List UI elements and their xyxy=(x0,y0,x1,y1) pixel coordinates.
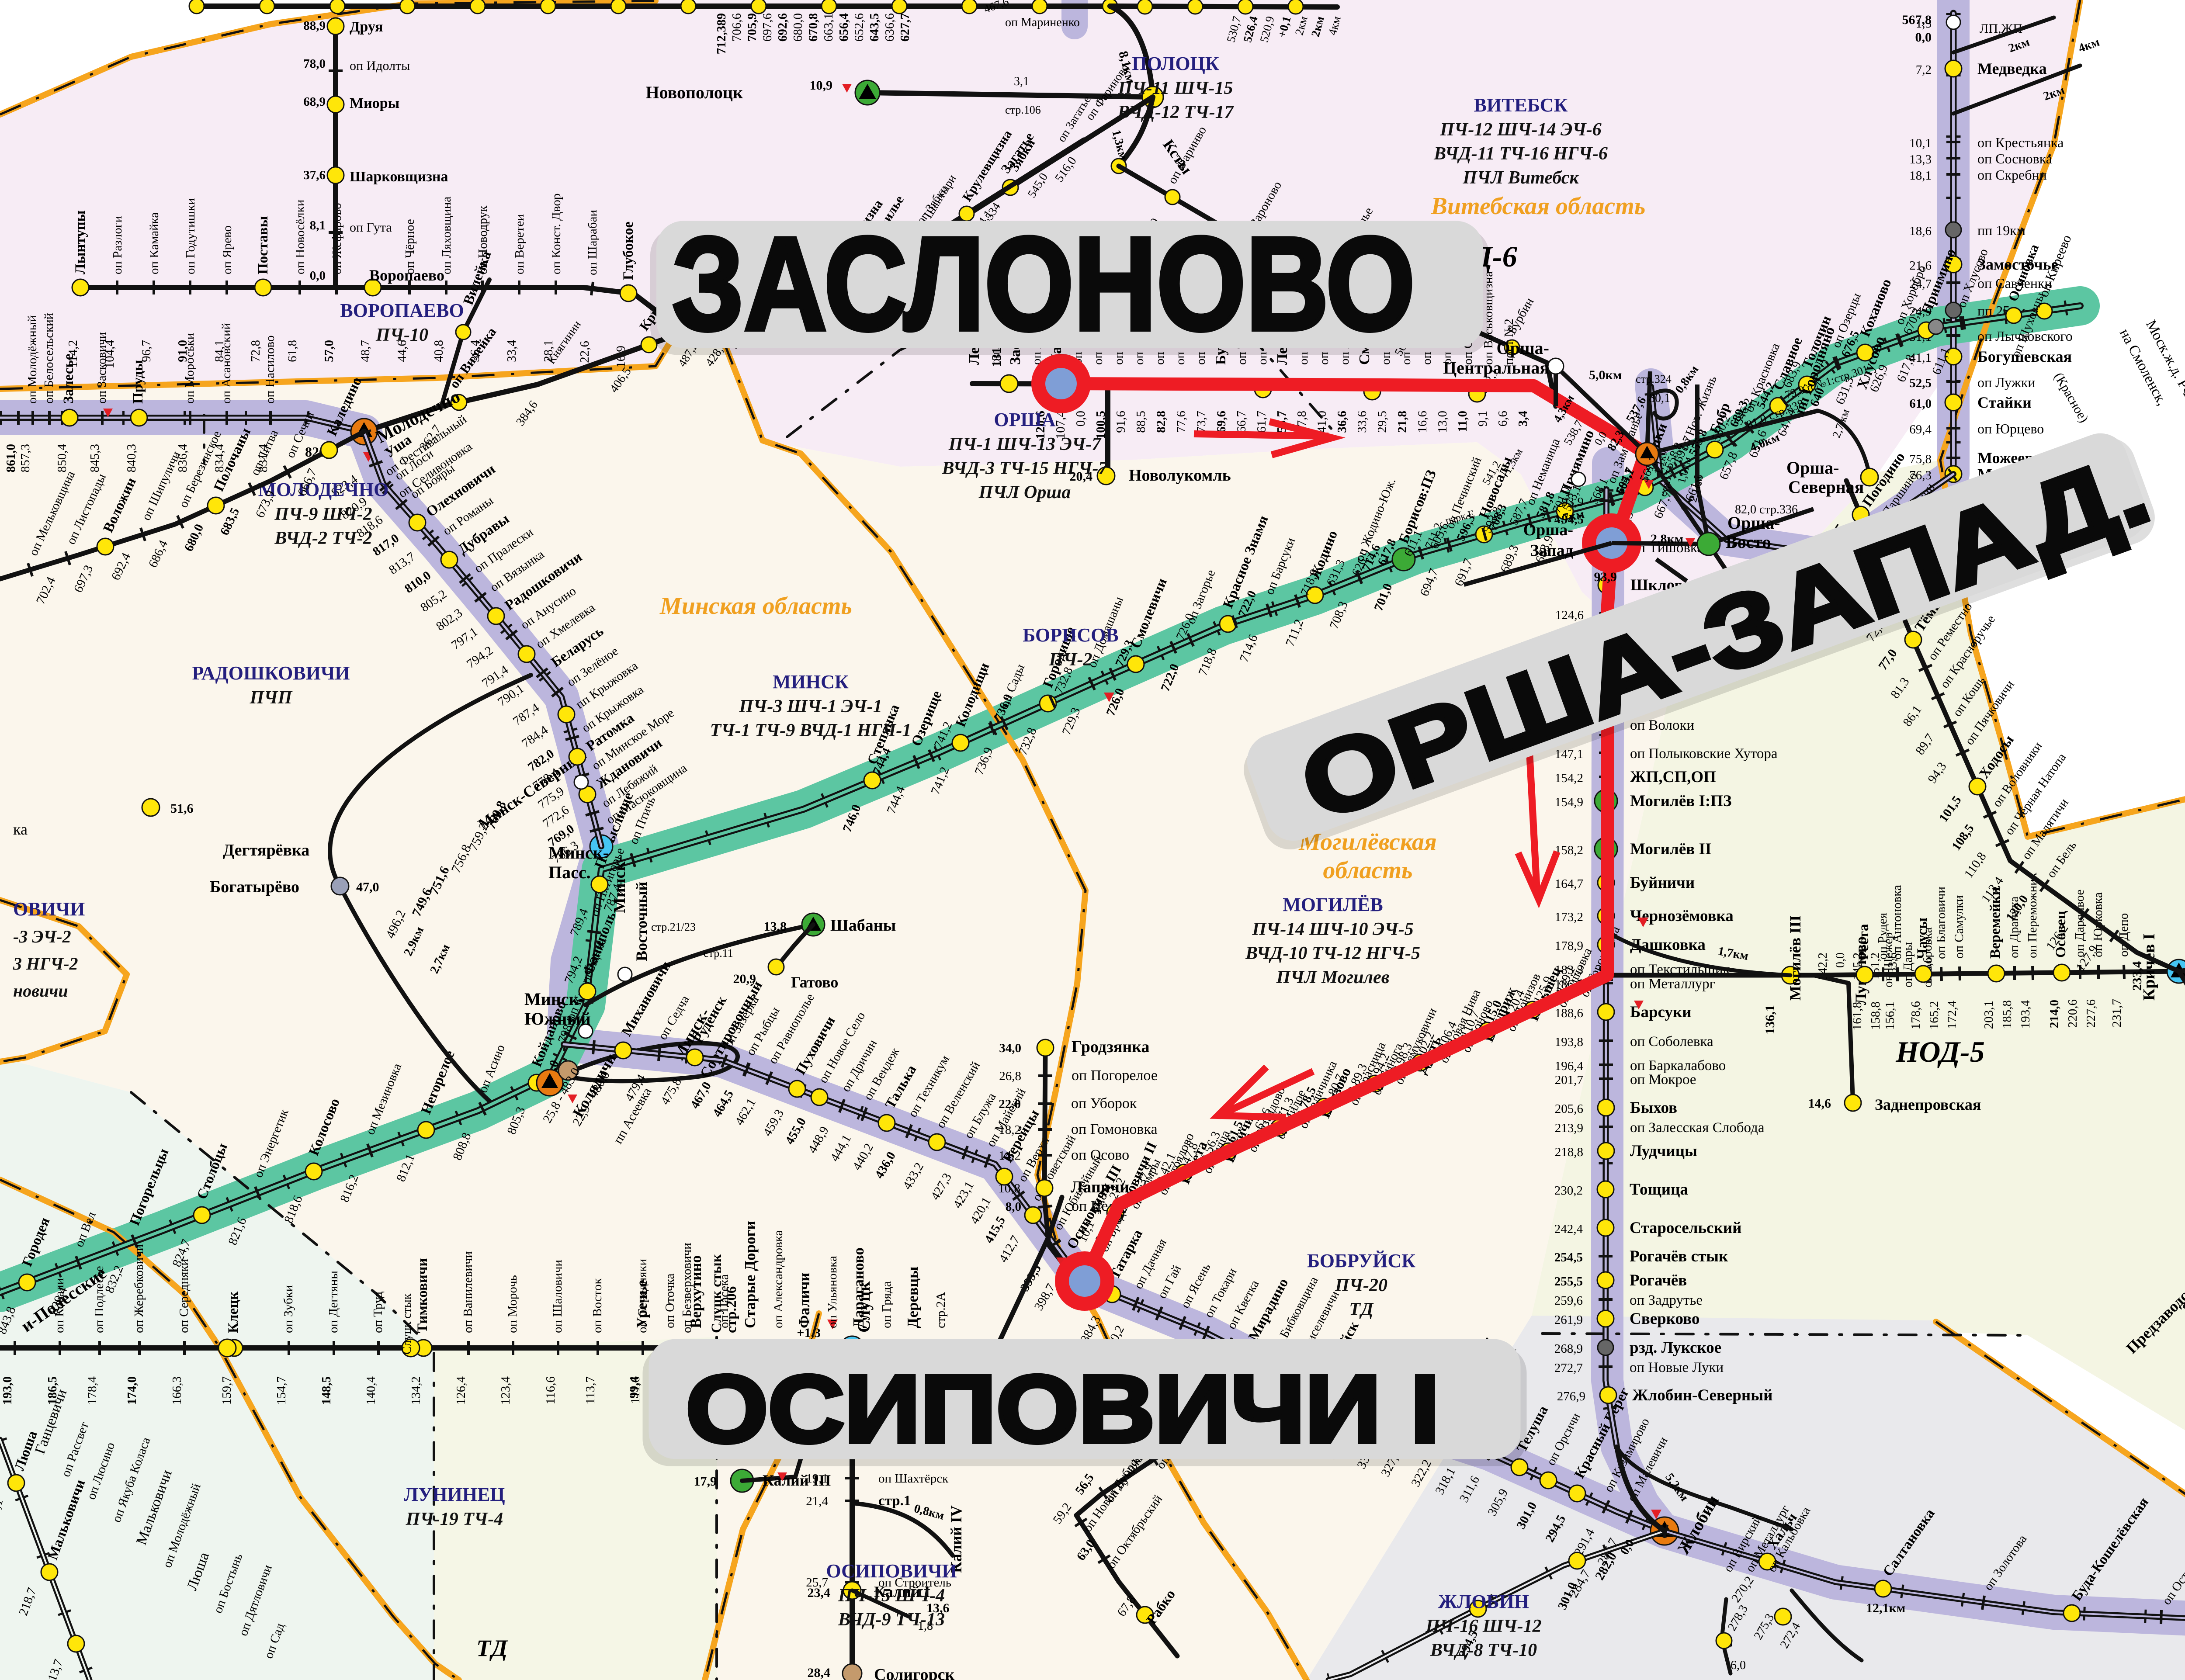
svg-text:оп Молодёжный: оп Молодёжный xyxy=(25,315,39,404)
svg-text:652,6: 652,6 xyxy=(852,13,866,42)
svg-text:41,0: 41,0 xyxy=(1315,411,1329,433)
svg-text:Новолукомль: Новолукомль xyxy=(1129,466,1231,485)
svg-text:242,4: 242,4 xyxy=(1554,1222,1583,1236)
svg-text:ПЧЛ Орша: ПЧЛ Орша xyxy=(978,482,1071,502)
svg-text:21,8: 21,8 xyxy=(1395,411,1409,433)
svg-text:3,4: 3,4 xyxy=(1516,411,1530,426)
svg-text:697,6: 697,6 xyxy=(760,13,774,42)
svg-text:Заднепровская: Заднепровская xyxy=(1875,1096,1981,1113)
svg-text:ПЧ-2: ПЧ-2 xyxy=(1048,650,1092,670)
svg-text:оп Засковичи: оп Засковичи xyxy=(95,332,109,404)
svg-text:Богатырёво: Богатырёво xyxy=(210,878,299,896)
svg-text:оп Полыковские Хутора: оп Полыковские Хутора xyxy=(1630,746,1778,762)
svg-text:ПЧЛ Витебск: ПЧЛ Витебск xyxy=(1462,168,1579,188)
svg-text:БОРИСОВ: БОРИСОВ xyxy=(1023,624,1118,646)
svg-text:ЛУНИНЕЦ: ЛУНИНЕЦ xyxy=(404,1484,505,1505)
svg-text:680,0: 680,0 xyxy=(791,13,805,42)
svg-text:пп 19км: пп 19км xyxy=(1977,222,2025,238)
svg-text:оп Рудея: оп Рудея xyxy=(1876,913,1890,960)
svg-text:Могилёв I:ПЗ: Могилёв I:ПЗ xyxy=(1630,792,1732,810)
svg-text:6,0: 6,0 xyxy=(1731,1659,1746,1672)
svg-text:193,8: 193,8 xyxy=(1555,1035,1583,1049)
svg-text:Поставы: Поставы xyxy=(255,216,271,274)
svg-text:Жлобин-Северный: Жлобин-Северный xyxy=(1632,1386,1772,1404)
svg-text:10,8: 10,8 xyxy=(998,1181,1020,1195)
svg-text:134,2: 134,2 xyxy=(409,1376,423,1405)
svg-text:172,4: 172,4 xyxy=(1945,1001,1959,1029)
svg-text:5,0км: 5,0км xyxy=(1589,368,1622,382)
svg-text:оп Шаловичи: оп Шаловичи xyxy=(551,1260,565,1333)
svg-text:Дегтярёвка: Дегтярёвка xyxy=(223,841,309,859)
svg-text:оп Осово: оп Осово xyxy=(1071,1147,1129,1163)
svg-text:255,5: 255,5 xyxy=(1554,1275,1583,1289)
svg-text:124,6: 124,6 xyxy=(1555,608,1584,622)
svg-text:857,3: 857,3 xyxy=(18,444,32,472)
svg-text:ВИТЕБСК: ВИТЕБСК xyxy=(1474,94,1568,116)
svg-text:0,0: 0,0 xyxy=(1834,953,1847,968)
svg-text:276,9: 276,9 xyxy=(1557,1389,1585,1403)
svg-text:861,0: 861,0 xyxy=(4,444,18,472)
svg-text:Минская область: Минская область xyxy=(659,592,852,620)
svg-text:Сверково: Сверково xyxy=(1630,1310,1699,1328)
svg-text:Старые Дороги: Старые Дороги xyxy=(742,1221,759,1328)
svg-text:82,0 стр.336: 82,0 стр.336 xyxy=(1735,503,1798,516)
svg-text:оп Гомоновка: оп Гомоновка xyxy=(1071,1121,1158,1137)
svg-text:Пруды: Пруды xyxy=(130,360,146,404)
svg-text:13,8: 13,8 xyxy=(764,919,787,934)
svg-text:22,0: 22,0 xyxy=(999,1097,1021,1111)
svg-text:оп Переможник: оп Переможник xyxy=(2025,872,2039,958)
svg-text:233,4: 233,4 xyxy=(2130,961,2144,991)
svg-text:ПОЛОЦК: ПОЛОЦК xyxy=(1132,53,1219,74)
svg-text:Шабаны: Шабаны xyxy=(830,916,896,935)
svg-text:ПЧП: ПЧП xyxy=(250,688,293,708)
svg-text:рзд. Лукское: рзд. Лукское xyxy=(1630,1339,1721,1357)
svg-text:2,8км: 2,8км xyxy=(1651,532,1683,546)
svg-text:Тощица: Тощица xyxy=(1630,1181,1688,1199)
svg-text:567,8: 567,8 xyxy=(1902,13,1932,27)
svg-text:18,2: 18,2 xyxy=(999,1123,1021,1137)
svg-text:ПЧЛ Могилев: ПЧЛ Могилев xyxy=(1276,967,1390,987)
svg-text:12,1км: 12,1км xyxy=(1866,1601,1905,1615)
svg-text:Фаличи: Фаличи xyxy=(796,1272,813,1328)
svg-text:Гатово: Гатово xyxy=(791,973,838,991)
svg-text:69,6: 69,6 xyxy=(1214,411,1228,433)
svg-text:193,4: 193,4 xyxy=(2019,1000,2032,1029)
svg-text:область: область xyxy=(1323,857,1412,884)
svg-text:ТД: ТД xyxy=(476,1635,508,1661)
svg-text:185,8: 185,8 xyxy=(2000,1000,2014,1029)
svg-text:22,6: 22,6 xyxy=(578,341,592,363)
svg-text:23,4: 23,4 xyxy=(808,1586,831,1600)
svg-text:ПЧ-11 ШЧ-15: ПЧ-11 ШЧ-15 xyxy=(1118,78,1233,98)
svg-text:ка: ка xyxy=(13,821,28,838)
svg-text:10,9: 10,9 xyxy=(810,78,833,93)
svg-text:126,4: 126,4 xyxy=(454,1376,468,1405)
svg-text:636,6: 636,6 xyxy=(883,13,897,42)
svg-text:80,1: 80,1 xyxy=(1649,391,1670,405)
svg-text:201,7: 201,7 xyxy=(1555,1073,1583,1087)
svg-text:ПЧ-19 ТЧ-4: ПЧ-19 ТЧ-4 xyxy=(406,1509,503,1529)
svg-text:148,5: 148,5 xyxy=(319,1376,333,1405)
svg-text:154,2: 154,2 xyxy=(1555,771,1583,785)
svg-text:99,4: 99,4 xyxy=(627,1376,641,1399)
svg-text:ТД: ТД xyxy=(1349,1299,1374,1320)
svg-text:Калий III: Калий III xyxy=(763,1472,831,1489)
svg-text:оп Шахтёрск: оп Шахтёрск xyxy=(878,1472,949,1486)
svg-text:ПЧ-10: ПЧ-10 xyxy=(375,325,428,345)
svg-text:оп Самулки: оп Самулки xyxy=(1952,895,1966,959)
svg-text:оп Дарливое: оп Дарливое xyxy=(2073,890,2087,957)
svg-text:ОВИЧИ: ОВИЧИ xyxy=(13,898,85,920)
svg-text:77,6: 77,6 xyxy=(1174,411,1188,433)
svg-text:670,8: 670,8 xyxy=(806,13,820,42)
svg-text:845,3: 845,3 xyxy=(88,444,102,472)
svg-text:ВЧД-3 ТЧ-15 НГЧ-7: ВЧД-3 ТЧ-15 НГЧ-7 xyxy=(941,458,1108,478)
svg-text:158,8: 158,8 xyxy=(1869,1001,1883,1030)
svg-text:ОСИПОВИЧИ: ОСИПОВИЧИ xyxy=(826,1560,957,1582)
svg-text:705,9: 705,9 xyxy=(745,13,759,42)
svg-text:оп Оточка: оп Оточка xyxy=(663,1274,677,1328)
svg-text:627,7: 627,7 xyxy=(898,13,912,42)
svg-text:оп Лужки: оп Лужки xyxy=(1977,374,2035,390)
svg-text:91,6: 91,6 xyxy=(1114,411,1128,433)
svg-text:75,8: 75,8 xyxy=(1909,452,1932,466)
svg-text:ПЧ-12 ШЧ-14 ЭЧ-6: ПЧ-12 ШЧ-14 ЭЧ-6 xyxy=(1439,120,1602,140)
svg-text:8,1: 8,1 xyxy=(310,218,326,232)
svg-text:ПЧ-3 ШЧ-1 ЭЧ-1: ПЧ-3 ШЧ-1 ЭЧ-1 xyxy=(739,696,882,717)
svg-text:оп Скребни: оп Скребни xyxy=(1977,167,2047,183)
svg-text:8,0: 8,0 xyxy=(1006,1200,1021,1214)
svg-text:Минск-: Минск- xyxy=(610,856,629,913)
svg-text:ЖП,СП,ОП: ЖП,СП,ОП xyxy=(1630,768,1716,786)
svg-text:ВЧД-2 ТЧ-2: ВЧД-2 ТЧ-2 xyxy=(274,528,372,548)
svg-text:МОЛОДЕЧНО: МОЛОДЕЧНО xyxy=(258,479,389,500)
svg-text:16,6: 16,6 xyxy=(1415,411,1429,433)
svg-text:37,6: 37,6 xyxy=(303,168,326,182)
svg-text:оп Асановский: оп Асановский xyxy=(219,323,233,404)
svg-text:оп Труд: оп Труд xyxy=(371,1291,385,1333)
svg-text:оп Антоновка: оп Антоновка xyxy=(1890,885,1904,960)
svg-text:116,6: 116,6 xyxy=(544,1376,558,1404)
svg-text:Южный: Южный xyxy=(524,1009,591,1029)
svg-text:61,0: 61,0 xyxy=(1909,397,1932,411)
svg-text:оп Зубки: оп Зубки xyxy=(281,1285,295,1333)
svg-text:706,6: 706,6 xyxy=(730,13,744,42)
svg-text:Глубокое: Глубокое xyxy=(621,222,636,280)
svg-text:стр.324: стр.324 xyxy=(1636,373,1672,385)
svg-text:Чаусы: Чаусы xyxy=(1914,918,1930,959)
svg-text:643,5: 643,5 xyxy=(867,13,881,42)
svg-text:оп Белосельский: оп Белосельский xyxy=(42,313,56,404)
svg-text:692,6: 692,6 xyxy=(776,13,790,42)
svg-text:оп Ульяновка: оп Ульяновка xyxy=(825,1256,839,1328)
svg-text:3 НГЧ-2: 3 НГЧ-2 xyxy=(13,954,78,973)
svg-text:оп Веретеи: оп Веретеи xyxy=(513,214,527,274)
svg-text:254,5: 254,5 xyxy=(1554,1250,1583,1264)
svg-text:Рогачёв: Рогачёв xyxy=(1630,1271,1687,1289)
svg-text:ВЧД-12 ТЧ-17: ВЧД-12 ТЧ-17 xyxy=(1117,102,1234,122)
svg-text:оп Залесская Слобода: оп Залесская Слобода xyxy=(1630,1120,1765,1136)
svg-text:230,2: 230,2 xyxy=(1554,1184,1583,1198)
svg-text:оп Задрутье: оп Задрутье xyxy=(1630,1292,1703,1308)
svg-text:Быхов: Быхов xyxy=(1630,1099,1677,1117)
svg-text:Солигорск: Солигорск xyxy=(874,1666,954,1680)
svg-text:ОСИПОВИЧИ I: ОСИПОВИЧИ I xyxy=(686,1356,1440,1462)
svg-text:оп Погорелое: оп Погорелое xyxy=(1072,1067,1158,1084)
svg-text:218,8: 218,8 xyxy=(1555,1145,1583,1159)
svg-text:61,8: 61,8 xyxy=(285,340,299,362)
svg-text:оп Морочь: оп Морочь xyxy=(506,1275,520,1333)
svg-text:Восто: Восто xyxy=(1726,532,1771,552)
svg-text:96,7: 96,7 xyxy=(139,340,153,362)
svg-text:7,2: 7,2 xyxy=(1916,63,1932,77)
svg-text:66,7: 66,7 xyxy=(1235,411,1249,433)
svg-text:88,5: 88,5 xyxy=(1134,411,1148,433)
svg-text:Орша-: Орша- xyxy=(1786,458,1839,478)
svg-text:165,2: 165,2 xyxy=(1927,1001,1941,1029)
svg-text:36,6: 36,6 xyxy=(1335,411,1349,433)
svg-text:850,4: 850,4 xyxy=(55,444,69,473)
svg-text:18,1: 18,1 xyxy=(1909,169,1932,183)
svg-text:ВЧД-8 ТЧ-10: ВЧД-8 ТЧ-10 xyxy=(1430,1640,1537,1660)
svg-text:11,0: 11,0 xyxy=(1456,411,1470,432)
svg-text:оп Камайка: оп Камайка xyxy=(147,212,161,274)
svg-text:Залесье: Залесье xyxy=(61,353,76,404)
svg-text:-3 ЭЧ-2: -3 ЭЧ-2 xyxy=(13,927,71,946)
svg-text:Уречье: Уречье xyxy=(633,1280,650,1328)
svg-text:оп Новые Луки: оп Новые Луки xyxy=(1630,1360,1724,1375)
svg-text:161,8: 161,8 xyxy=(1850,1002,1864,1030)
svg-text:78,0: 78,0 xyxy=(303,57,326,71)
svg-text:57,0: 57,0 xyxy=(322,340,336,362)
svg-text:663,1: 663,1 xyxy=(822,13,836,42)
svg-text:оп Гряда: оп Гряда xyxy=(880,1281,894,1328)
svg-text:оп Восток: оп Восток xyxy=(590,1278,604,1333)
svg-text:ЗАСЛОНОВО: ЗАСЛОНОВО xyxy=(672,210,1415,358)
svg-text:ПЧ-16 ШЧ-12: ПЧ-16 ШЧ-12 xyxy=(1425,1616,1541,1636)
svg-text:159,7: 159,7 xyxy=(220,1376,234,1405)
svg-text:40,8: 40,8 xyxy=(432,340,446,362)
svg-text:оп Годутишки: оп Годутишки xyxy=(184,198,198,274)
svg-text:стр.2А: стр.2А xyxy=(934,1292,948,1328)
svg-text:Новополоцк: Новополоцк xyxy=(646,83,743,102)
svg-text:6,6: 6,6 xyxy=(1496,411,1510,426)
svg-text:оп Юрцево: оп Юрцево xyxy=(1977,421,2044,436)
svg-text:193,0: 193,0 xyxy=(0,1376,14,1405)
svg-text:оп Александровка: оп Александровка xyxy=(771,1230,785,1328)
svg-text:Гродзянка: Гродзянка xyxy=(1072,1038,1150,1056)
svg-text:РАДОШКОВИЧИ: РАДОШКОВИЧИ xyxy=(192,662,350,684)
svg-text:156,1: 156,1 xyxy=(1883,1001,1897,1030)
svg-text:Лынтупы: Лынтупы xyxy=(73,211,88,274)
svg-text:188,6: 188,6 xyxy=(1555,1006,1583,1020)
svg-text:оп Идолты: оп Идолты xyxy=(350,59,410,73)
svg-text:стр.11: стр.11 xyxy=(704,947,733,960)
svg-text:174,0: 174,0 xyxy=(125,1376,139,1405)
svg-text:140,4: 140,4 xyxy=(364,1376,378,1405)
svg-text:14,6: 14,6 xyxy=(1808,1096,1831,1111)
svg-text:Друя: Друя xyxy=(350,19,383,35)
svg-text:0,0: 0,0 xyxy=(1915,30,1932,45)
svg-text:73,7: 73,7 xyxy=(1194,411,1208,433)
svg-text:ПЧ-14 ШЧ-10 ЭЧ-5: ПЧ-14 ШЧ-10 ЭЧ-5 xyxy=(1252,919,1414,939)
svg-text:33,6: 33,6 xyxy=(1355,411,1369,433)
svg-text:Шарковщизна: Шарковщизна xyxy=(350,169,448,185)
svg-text:Деревцы: Деревцы xyxy=(904,1267,921,1328)
svg-text:оп Пасека: оп Пасека xyxy=(717,1274,731,1328)
svg-text:оп Жеребковичи: оп Жеребковичи xyxy=(132,1244,146,1333)
svg-text:14,2: 14,2 xyxy=(999,1149,1021,1163)
svg-text:новичи: новичи xyxy=(13,981,68,1001)
svg-text:ПЧ-1 ШЧ-13 ЭЧ-7: ПЧ-1 ШЧ-13 ЭЧ-7 xyxy=(948,434,1102,454)
svg-text:34,0: 34,0 xyxy=(999,1041,1021,1055)
svg-text:оп Депо: оп Депо xyxy=(2117,913,2131,957)
svg-text:51,6: 51,6 xyxy=(170,801,194,816)
svg-text:БОБРУЙСК: БОБРУЙСК xyxy=(1307,1250,1415,1271)
svg-text:10,1: 10,1 xyxy=(1909,136,1932,150)
svg-text:123,4: 123,4 xyxy=(499,1376,513,1405)
svg-text:ПЧ-9 ШЧ-2: ПЧ-9 ШЧ-2 xyxy=(274,504,372,524)
svg-text:оп Конст. Двор: оп Конст. Двор xyxy=(549,194,563,274)
svg-text:оп Ляховщина: оп Ляховщина xyxy=(440,197,454,274)
svg-text:113,7: 113,7 xyxy=(583,1376,597,1404)
svg-text:стр.106: стр.106 xyxy=(1005,104,1041,116)
svg-text:оп Новосёлки: оп Новосёлки xyxy=(293,200,307,274)
svg-text:оп Баркалабово: оп Баркалабово xyxy=(1630,1058,1726,1074)
svg-text:68,9: 68,9 xyxy=(303,95,326,109)
svg-text:оп Гута: оп Гута xyxy=(350,220,392,235)
svg-text:Буйничи: Буйничи xyxy=(1630,874,1695,892)
svg-text:Центральная: Центральная xyxy=(1443,358,1549,378)
svg-text:Медведка: Медведка xyxy=(1977,60,2047,77)
svg-text:268,9: 268,9 xyxy=(1554,1342,1583,1356)
svg-text:Северная: Северная xyxy=(1788,477,1864,497)
svg-text:ВОРОПАЕВО: ВОРОПАЕВО xyxy=(340,300,464,321)
svg-text:205,6: 205,6 xyxy=(1555,1102,1583,1116)
svg-text:стр.21/23: стр.21/23 xyxy=(651,921,696,933)
svg-text:Воропаево: Воропаево xyxy=(369,267,444,284)
svg-text:МИНСК: МИНСК xyxy=(773,671,849,693)
svg-text:93,9: 93,9 xyxy=(1594,570,1617,584)
svg-text:3,1: 3,1 xyxy=(1014,75,1029,88)
svg-text:48,7: 48,7 xyxy=(358,340,372,362)
svg-text:183,3: 183,3 xyxy=(1555,963,1583,977)
svg-text:Клецк: Клецк xyxy=(225,1292,241,1333)
svg-text:13,0: 13,0 xyxy=(1436,411,1450,433)
svg-text:Могилёв III: Могилёв III xyxy=(1786,915,1804,1001)
svg-text:ВЧД-11 ТЧ-16 НГЧ-6: ВЧД-11 ТЧ-16 НГЧ-6 xyxy=(1433,144,1608,164)
svg-text:Запад: Запад xyxy=(1530,541,1573,560)
svg-text:оп Крестьянка: оп Крестьянка xyxy=(1977,135,2064,150)
svg-text:Старосельский: Старосельский xyxy=(1630,1219,1741,1237)
svg-text:0,0: 0,0 xyxy=(1074,411,1088,426)
svg-text:оп Уборок: оп Уборок xyxy=(1071,1095,1137,1112)
svg-text:оп Мариненко: оп Мариненко xyxy=(1005,16,1080,29)
svg-text:178,9: 178,9 xyxy=(1555,939,1583,953)
svg-text:178,4: 178,4 xyxy=(85,1376,99,1405)
svg-text:82,8: 82,8 xyxy=(1154,411,1168,433)
svg-text:оп Благовичи: оп Благовичи xyxy=(1934,887,1948,959)
svg-text:оп Чёрное: оп Чёрное xyxy=(403,219,417,274)
svg-text:ОРША: ОРША xyxy=(994,409,1055,430)
svg-text:196,4: 196,4 xyxy=(1555,1059,1584,1073)
svg-text:26,8: 26,8 xyxy=(999,1069,1021,1083)
svg-text:47,0: 47,0 xyxy=(356,880,379,894)
svg-text:ВЧД-10 ТЧ-12 НГЧ-5: ВЧД-10 ТЧ-12 НГЧ-5 xyxy=(1245,943,1420,963)
svg-text:154,9: 154,9 xyxy=(1555,795,1583,809)
svg-text:ЖЛОБИН: ЖЛОБИН xyxy=(1438,1591,1529,1612)
svg-text:227,6: 227,6 xyxy=(2084,999,2098,1028)
svg-text:ТЧ-1 ТЧ-9 ВЧД-1 НГЧ-1: ТЧ-1 ТЧ-9 ВЧД-1 НГЧ-1 xyxy=(710,720,912,741)
svg-text:69,4: 69,4 xyxy=(1909,423,1932,436)
svg-text:ПЧ-15 ШЧ-4: ПЧ-15 ШЧ-4 xyxy=(838,1586,945,1606)
svg-text:ПЧ-20: ПЧ-20 xyxy=(1335,1275,1387,1296)
svg-text:Восточный: Восточный xyxy=(633,882,650,961)
svg-text:оп Ярево: оп Ярево xyxy=(220,225,234,274)
svg-text:Могилёв II: Могилёв II xyxy=(1630,840,1711,858)
svg-text:136,1: 136,1 xyxy=(1763,1005,1777,1035)
svg-text:154,7: 154,7 xyxy=(274,1376,288,1405)
svg-text:18,6: 18,6 xyxy=(1909,224,1932,238)
svg-text:220,6: 220,6 xyxy=(2066,999,2080,1028)
svg-text:203,1: 203,1 xyxy=(1982,1001,1996,1029)
svg-text:оп Середняки: оп Середняки xyxy=(177,1259,191,1333)
svg-text:Рогачёв стык: Рогачёв стык xyxy=(1630,1247,1728,1265)
svg-text:33,4: 33,4 xyxy=(505,340,519,362)
svg-text:656,4: 656,4 xyxy=(837,13,851,42)
svg-text:Дараганово: Дараганово xyxy=(850,1247,867,1328)
svg-text:ВЧД-9 ТЧ-13: ВЧД-9 ТЧ-13 xyxy=(838,1610,945,1630)
svg-text:88,9: 88,9 xyxy=(303,19,326,33)
svg-text:61,7: 61,7 xyxy=(1255,411,1269,433)
svg-text:оп Соболевка: оп Соболевка xyxy=(1630,1034,1713,1050)
svg-text:164,7: 164,7 xyxy=(1555,877,1583,891)
svg-text:272,7: 272,7 xyxy=(1554,1361,1583,1375)
svg-text:261,9: 261,9 xyxy=(1554,1313,1583,1327)
svg-text:231,7: 231,7 xyxy=(2110,999,2124,1027)
svg-text:173,2: 173,2 xyxy=(1555,910,1583,924)
svg-text:21,4: 21,4 xyxy=(806,1494,828,1508)
svg-text:Минск-: Минск- xyxy=(524,989,585,1009)
svg-text:оп Шарабаи: оп Шарабаи xyxy=(586,210,600,275)
svg-text:Слуцк стык: Слуцк стык xyxy=(400,1293,414,1354)
svg-text:213,9: 213,9 xyxy=(1555,1121,1583,1135)
svg-text:оп Ванилевичи: оп Ванилевичи xyxy=(461,1251,475,1333)
svg-text:Пасс.: Пасс. xyxy=(548,863,591,882)
svg-text:214,0: 214,0 xyxy=(2047,1000,2061,1028)
svg-text:Орша-: Орша- xyxy=(1497,338,1549,358)
svg-text:712,389: 712,389 xyxy=(714,13,728,54)
svg-text:259,6: 259,6 xyxy=(1554,1294,1583,1308)
svg-text:оп Мокрое: оп Мокрое xyxy=(1630,1072,1696,1088)
svg-text:оп Металлург: оп Металлург xyxy=(1630,976,1715,992)
svg-text:Лудчицы: Лудчицы xyxy=(1630,1142,1697,1160)
svg-text:166,3: 166,3 xyxy=(170,1376,184,1405)
svg-text:52,5: 52,5 xyxy=(1909,376,1932,390)
svg-text:оп Разлоги: оп Разлоги xyxy=(111,216,125,274)
svg-text:29,5: 29,5 xyxy=(1375,411,1389,433)
svg-text:17,9: 17,9 xyxy=(694,1474,717,1489)
svg-text:178,6: 178,6 xyxy=(1909,1001,1923,1029)
svg-text:Витебская область: Витебская область xyxy=(1431,193,1646,220)
svg-text:НОД-5: НОД-5 xyxy=(1895,1035,1984,1068)
svg-text:оп Мороськи: оп Мороськи xyxy=(183,333,197,404)
svg-text:Стайки: Стайки xyxy=(1977,394,2032,411)
svg-text:оп Насилово: оп Насилово xyxy=(263,336,277,404)
svg-text:Тимковичи: Тимковичи xyxy=(415,1258,430,1333)
svg-text:оп Дегтяны: оп Дегтяны xyxy=(326,1271,340,1333)
